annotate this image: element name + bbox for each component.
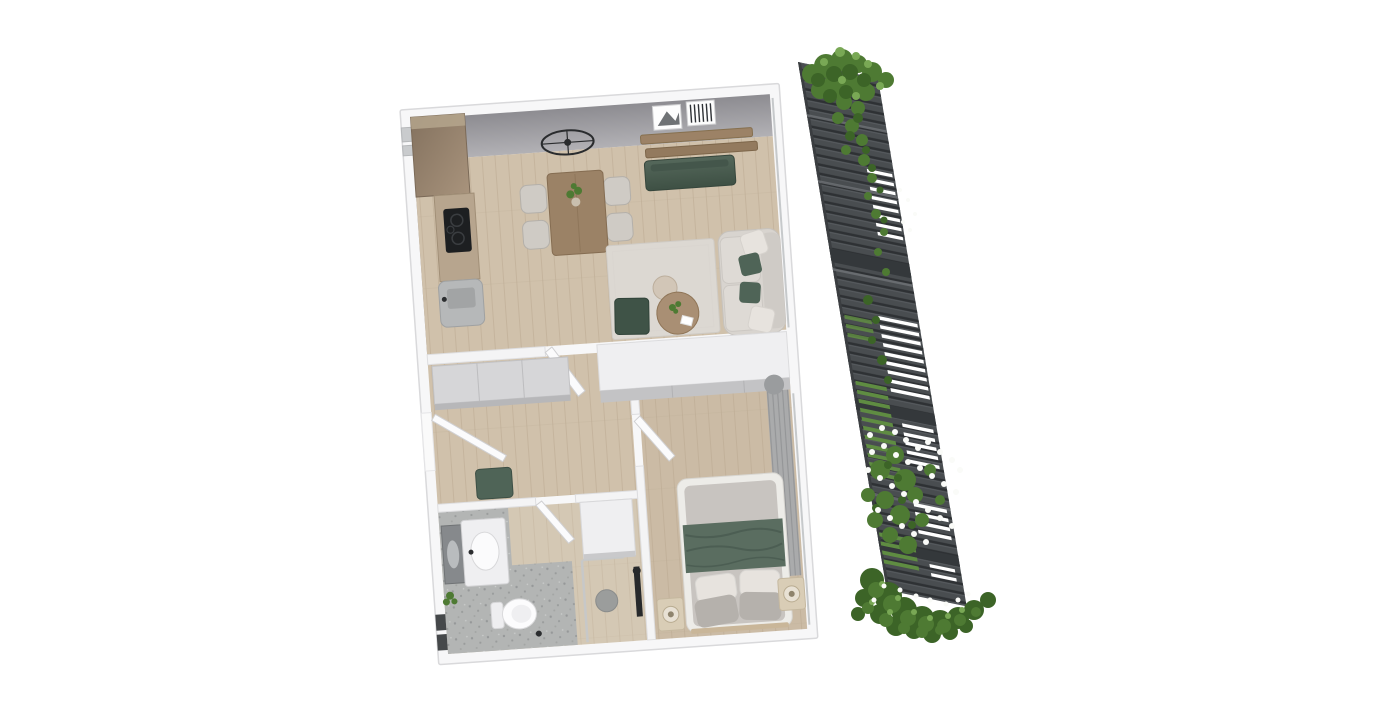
sofa-pillow-white [747, 305, 775, 333]
dining-chair [520, 184, 548, 214]
green-pouf [615, 298, 650, 335]
kitchen-sink [447, 287, 476, 309]
facade-window-notch-bottom2 [437, 634, 448, 651]
facade-window-notch-bottom1 [435, 614, 446, 631]
dining-chair [522, 220, 550, 250]
hallway-green-bench [475, 467, 513, 499]
lounge-area [606, 227, 787, 344]
sofa [717, 227, 786, 336]
floorplan-canvas [0, 0, 1386, 728]
dining-chair [603, 176, 631, 206]
dining-chair [606, 212, 634, 242]
sofa-pillow-green [739, 282, 761, 304]
apartment-plan [400, 83, 818, 664]
bed-green-throw [683, 518, 786, 573]
bathroom-tall-cabinet [580, 499, 636, 558]
floorplan-render [0, 0, 1386, 728]
bed-pillow-gray [739, 592, 781, 621]
picture-frame-striped [686, 100, 716, 126]
bed [676, 472, 793, 634]
